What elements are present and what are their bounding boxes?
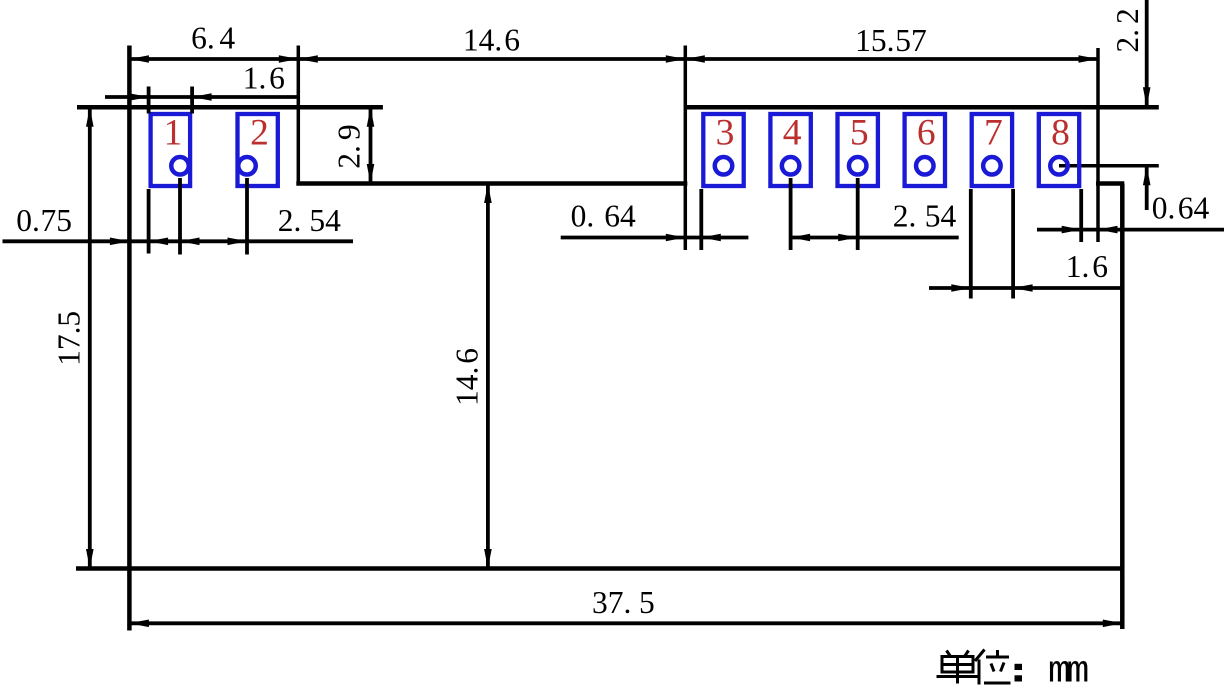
svg-text:15.: 15. xyxy=(855,23,894,58)
svg-text:0.: 0. xyxy=(571,199,595,234)
svg-text:7: 7 xyxy=(984,113,1003,154)
svg-text:5: 5 xyxy=(639,585,655,620)
svg-text:54: 54 xyxy=(925,199,957,234)
svg-text:0.: 0. xyxy=(1152,191,1176,226)
svg-text:1.: 1. xyxy=(243,60,267,95)
svg-text:5: 5 xyxy=(850,113,869,154)
svg-text:1: 1 xyxy=(164,113,183,154)
svg-text:2: 2 xyxy=(1110,8,1145,24)
svg-text:54: 54 xyxy=(309,203,341,238)
svg-text:4: 4 xyxy=(219,21,235,56)
svg-text:6: 6 xyxy=(450,348,485,364)
svg-text:75: 75 xyxy=(41,203,73,238)
svg-text:2.: 2. xyxy=(1110,29,1145,53)
svg-text:64: 64 xyxy=(604,199,636,234)
svg-text:4: 4 xyxy=(783,113,802,154)
svg-text:0.: 0. xyxy=(16,203,40,238)
svg-text:57: 57 xyxy=(895,23,927,58)
svg-text:14.: 14. xyxy=(450,367,485,406)
svg-text:1.: 1. xyxy=(1066,249,1090,284)
svg-text:5: 5 xyxy=(52,311,87,327)
svg-text:2.: 2. xyxy=(893,199,917,234)
svg-text:17.: 17. xyxy=(52,327,87,366)
svg-text:6: 6 xyxy=(269,60,285,95)
svg-text:2: 2 xyxy=(250,113,269,154)
svg-text:6.: 6. xyxy=(191,21,215,56)
svg-text:6: 6 xyxy=(917,113,936,154)
svg-text:64: 64 xyxy=(1178,191,1210,226)
svg-text:6: 6 xyxy=(504,22,520,57)
svg-text:m: m xyxy=(1067,651,1090,692)
svg-text:9: 9 xyxy=(332,124,367,140)
svg-text:2.: 2. xyxy=(332,145,367,169)
svg-text:6: 6 xyxy=(1092,249,1108,284)
svg-text:3: 3 xyxy=(716,113,735,154)
svg-text:8: 8 xyxy=(1051,113,1070,154)
svg-text:14.: 14. xyxy=(463,22,502,57)
svg-text:2.: 2. xyxy=(278,203,302,238)
svg-text:37.: 37. xyxy=(592,585,631,620)
